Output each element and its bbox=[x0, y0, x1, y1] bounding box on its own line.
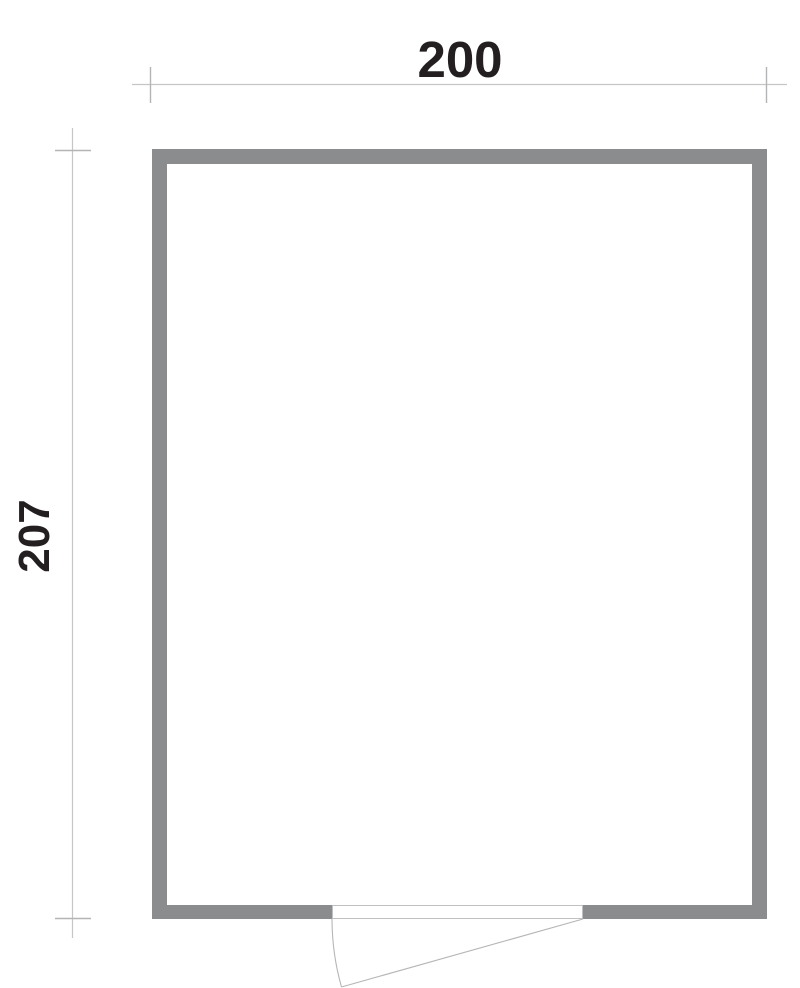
floor-plan-drawing: 200 207 bbox=[0, 0, 800, 988]
floor-plan-page: 200 207 bbox=[0, 0, 800, 988]
wall-left bbox=[152, 149, 167, 919]
wall-bottom-left bbox=[152, 905, 332, 919]
width-dimension-label: 200 bbox=[417, 31, 502, 88]
height-dimension-label: 207 bbox=[10, 499, 59, 572]
wall-bottom-right bbox=[583, 905, 767, 919]
wall-right bbox=[752, 149, 767, 919]
drawing-background bbox=[0, 0, 800, 988]
wall-top bbox=[152, 149, 767, 164]
